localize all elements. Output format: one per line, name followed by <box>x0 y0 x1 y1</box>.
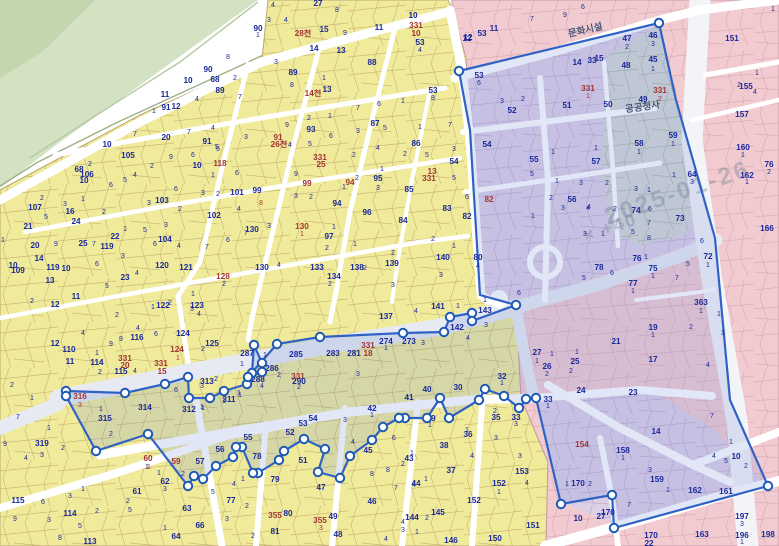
selection-vertex-node[interactable] <box>316 333 324 341</box>
parcel-label: 6 <box>174 186 178 193</box>
parcel-label: 8 <box>226 54 230 61</box>
selection-vertex-node[interactable] <box>184 373 192 381</box>
parcel-label: 85 <box>404 185 414 194</box>
parcel-label: 2 <box>251 533 255 540</box>
parcel-label: 4 <box>376 145 380 152</box>
parcel-label: 35 <box>491 413 501 422</box>
parcel-label: 56 <box>215 445 225 454</box>
parcel-label: 14 <box>651 427 661 436</box>
parcel-label: 10 <box>731 452 741 461</box>
parcel-label: 55 <box>243 433 253 442</box>
parcel-label: 2 <box>352 152 356 159</box>
parcel-label: 152 <box>467 496 481 505</box>
parcel-label: 283 <box>326 349 340 358</box>
parcel-label: 6 <box>392 435 396 442</box>
parcel-label: 2 <box>201 346 205 353</box>
parcel-label: 22 <box>644 539 654 546</box>
parcel-label: 3 <box>147 200 151 207</box>
parcel-label: 73 <box>675 214 685 223</box>
parcel-label: 1 <box>241 476 245 483</box>
parcel-label: 53 <box>298 419 308 428</box>
selection-vertex-node[interactable] <box>436 394 444 402</box>
parcel-label: 4 <box>414 308 418 315</box>
parcel-label: 51 <box>298 456 308 465</box>
parcel-label: 99 <box>302 179 312 188</box>
parcel-label: 4 <box>277 262 281 269</box>
parcel-label: 2 <box>150 163 154 170</box>
parcel-label: 1 <box>370 412 374 419</box>
parcel-label: 4 <box>135 270 139 277</box>
parcel-label: 104 <box>158 235 172 244</box>
parcel-label: 2 <box>95 508 99 515</box>
parcel-label: 1 <box>666 487 670 494</box>
parcel-label: 133 <box>310 263 324 272</box>
parcel-label: 1 <box>671 141 675 148</box>
selection-vertex-node[interactable] <box>468 317 476 325</box>
parcel-label: 10 <box>61 264 71 273</box>
parcel-label: 6 <box>477 80 481 87</box>
parcel-label: 76 <box>632 254 642 263</box>
parcel-label: 3 <box>452 146 456 153</box>
parcel-label: 1 <box>95 350 99 357</box>
parcel-label: 1 <box>706 262 710 269</box>
parcel-label: 1 <box>191 291 195 298</box>
parcel-label: 3 <box>164 222 168 229</box>
parcel-label: 4 <box>284 17 288 24</box>
parcel-label: 61 <box>132 487 142 496</box>
parcel-label: 93 <box>306 125 316 134</box>
parcel-label: 91 <box>202 137 212 146</box>
parcel-label: 7 <box>710 413 714 420</box>
selection-vertex-node[interactable] <box>321 445 329 453</box>
selection-vertex-node[interactable] <box>232 443 240 451</box>
selection-vertex-node[interactable] <box>346 452 354 460</box>
parcel-label: 1 <box>123 226 127 233</box>
parcel-label: 170 <box>601 508 615 517</box>
parcel-label: 1 <box>328 113 332 120</box>
parcel-label: 3 <box>225 516 229 523</box>
parcel-label: 151 <box>725 34 739 43</box>
parcel-label: 1 <box>428 422 432 429</box>
parcel-label: 8 <box>58 535 62 542</box>
parcel-label: 45 <box>648 55 658 64</box>
parcel-label: 1 <box>555 178 559 185</box>
parcel-label: 25 <box>316 160 326 169</box>
parcel-label: 58 <box>634 139 644 148</box>
parcel-label: 54 <box>482 140 492 149</box>
parcel-label: 144 <box>405 513 419 522</box>
parcel-label: 89 <box>215 86 225 95</box>
parcel-label: 5 <box>123 177 127 184</box>
parcel-label: 78 <box>594 263 604 272</box>
parcel-label: 21 <box>23 222 33 231</box>
parcel-label: 84 <box>398 216 408 225</box>
parcel-label: 76 <box>764 160 774 169</box>
selection-vertex-node[interactable] <box>610 524 618 532</box>
parcel-label: 5 <box>211 489 215 496</box>
selection-vertex-node[interactable] <box>220 387 228 395</box>
selection-vertex-node[interactable] <box>336 474 344 482</box>
parcel-label: 53 <box>415 38 425 47</box>
selection-vertex-node[interactable] <box>532 394 540 402</box>
parcel-label: 1 <box>651 332 655 339</box>
parcel-label: 15 <box>319 25 329 34</box>
parcel-label: 3 <box>47 517 51 524</box>
parcel-label: 6 <box>700 238 704 245</box>
parcel-label: 2 <box>309 194 313 201</box>
parcel-label: 113 <box>83 537 97 546</box>
parcel-label: 8 <box>259 200 263 207</box>
parcel-label: 3 <box>648 467 652 474</box>
parcel-label: 96 <box>362 208 372 217</box>
parcel-label: 1 <box>565 481 569 488</box>
parcel-label: 20 <box>161 133 171 142</box>
selection-vertex-node[interactable] <box>399 329 407 337</box>
parcel-label: 12 <box>50 300 60 309</box>
parcel-label: 55 <box>529 155 539 164</box>
selection-vertex-node[interactable] <box>481 385 489 393</box>
parcel-label: 16 <box>65 207 75 216</box>
selection-vertex-node[interactable] <box>446 313 454 321</box>
selection-vertex-node[interactable] <box>440 328 448 336</box>
parcel-label: 1 <box>741 152 745 159</box>
selection-vertex-node[interactable] <box>475 396 483 404</box>
parcel-label: 198 <box>761 530 775 539</box>
parcel-label: 6 <box>517 290 521 297</box>
parcel-label: 159 <box>650 475 664 484</box>
selection-vertex-node[interactable] <box>512 301 520 309</box>
parcel-label: 4 <box>260 383 264 390</box>
parcel-label: 80 <box>283 509 293 518</box>
selection-vertex-node[interactable] <box>250 341 258 349</box>
parcel-label: 3 <box>356 128 360 135</box>
map-viewport[interactable]: × +402025-01-269010682897119112418207491… <box>0 0 779 546</box>
parcel-label: 9 <box>294 171 298 178</box>
parcel-label: 3 <box>401 527 405 534</box>
parcel-label: 4 <box>211 125 215 132</box>
parcel-label: 6 <box>174 387 178 394</box>
parcel-label: 1 <box>631 288 635 295</box>
parcel-label: 1 <box>483 297 487 304</box>
parcel-label: 2 <box>115 312 119 319</box>
parcel-label: 15 <box>157 367 167 376</box>
parcel-label: 1 <box>152 108 156 115</box>
parcel-label: 4 <box>384 536 388 543</box>
parcel-label: 12 <box>171 102 181 111</box>
parcel-label: 1 <box>380 166 384 173</box>
parcel-label: 151 <box>526 521 540 530</box>
parcel-label: 82 <box>484 195 494 204</box>
parcel-label: 13 <box>336 46 346 55</box>
selection-vertex-node[interactable] <box>379 423 387 431</box>
selection-vertex-node[interactable] <box>273 340 281 348</box>
selection-vertex-node[interactable] <box>206 394 214 402</box>
parcel-label: 4 <box>712 453 716 460</box>
parcel-label: 54 <box>449 157 459 166</box>
parcel-label: 3 <box>40 452 44 459</box>
parcel-label: 6 <box>610 270 614 277</box>
parcel-label: 3 <box>78 402 82 409</box>
parcel-label: 11 <box>72 292 81 301</box>
parcel-label: 363 <box>694 298 708 307</box>
parcel-label: 141 <box>431 302 445 311</box>
parcel-label: 3 <box>200 383 204 390</box>
parcel-label: 3 <box>121 253 125 260</box>
parcel-label: 152 <box>492 479 506 488</box>
parcel-label: 7 <box>356 105 360 112</box>
parcel-label: 26천 <box>271 139 288 149</box>
parcel-label: 2 <box>549 195 553 202</box>
selection-vertex-node[interactable] <box>608 491 616 499</box>
parcel-label: 44 <box>411 479 421 488</box>
selection-vertex-node[interactable] <box>212 462 220 470</box>
parcel-label: 3 <box>484 322 488 329</box>
parcel-label: 1 <box>81 196 85 203</box>
parcel-label: 23 <box>628 388 638 397</box>
selection-vertex-node[interactable] <box>557 500 565 508</box>
parcel-label: 26 <box>542 362 552 371</box>
selection-vertex-node[interactable] <box>500 392 508 400</box>
parcel-label: 10 <box>411 29 421 38</box>
parcel-label: 5 <box>78 523 82 530</box>
parcel-label: 8 <box>335 7 339 14</box>
selection-vertex-node[interactable] <box>121 389 129 397</box>
selection-vertex-node[interactable] <box>423 414 431 422</box>
parcel-label: 10 <box>8 261 18 270</box>
selection-vertex-node[interactable] <box>258 368 266 376</box>
parcel-label: 102 <box>207 211 221 220</box>
parcel-label: 2 <box>245 503 249 510</box>
parcel-label: 3 <box>690 179 694 186</box>
selection-vertex-node[interactable] <box>161 380 169 388</box>
parcel-label: 140 <box>436 253 450 262</box>
parcel-label: 1 <box>1 237 5 244</box>
parcel-label: 162 <box>688 486 702 495</box>
parcel-label: 153 <box>515 467 529 476</box>
selection-vertex-node[interactable] <box>314 468 322 476</box>
parcel-label: 2 <box>625 44 629 51</box>
parcel-label: 9 <box>13 516 17 523</box>
parcel-label: 3 <box>439 272 443 279</box>
parcel-label: 24 <box>576 386 586 395</box>
parcel-label: 59 <box>171 457 181 466</box>
selection-vertex-node[interactable] <box>258 359 266 367</box>
parcel-label: 21 <box>611 337 621 346</box>
parcel-label: 105 <box>121 151 135 160</box>
parcel-label: 1 <box>550 351 554 358</box>
parcel-label: 7 <box>530 16 534 23</box>
parcel-label: 62 <box>160 477 170 486</box>
selection-vertex-node[interactable] <box>300 435 308 443</box>
parcel-label: 7 <box>92 241 96 248</box>
parcel-label: 2 <box>403 151 407 158</box>
parcel-label: 47 <box>622 34 632 43</box>
parcel-label: 2 <box>613 206 617 213</box>
selection-vertex-node[interactable] <box>199 475 207 483</box>
parcel-label: 2 <box>40 195 44 202</box>
parcel-label: 1 <box>81 486 85 493</box>
parcel-label: 66 <box>195 521 205 530</box>
parcel-label: 1 <box>300 231 304 238</box>
parcel-label: 3 <box>634 186 638 193</box>
selection-vertex-node[interactable] <box>92 447 100 455</box>
parcel-label: 2 <box>363 265 367 272</box>
parcel-label: 2 <box>307 115 311 122</box>
parcel-label: 5 <box>383 125 387 132</box>
parcel-label: 77 <box>628 279 638 288</box>
parcel-label: 11 <box>375 23 384 32</box>
parcel-label: 2 <box>737 82 741 89</box>
parcel-label: 143 <box>478 306 492 315</box>
parcel-label: 50 <box>603 100 613 109</box>
selection-vertex-node[interactable] <box>275 456 283 464</box>
parcel-label: 10 <box>408 11 418 20</box>
parcel-label: 4 <box>401 519 405 526</box>
selection-vertex-node[interactable] <box>185 394 193 402</box>
parcel-label: 2 <box>297 384 301 391</box>
parcel-label: 4 <box>197 311 201 318</box>
parcel-label: 51 <box>562 101 572 110</box>
parcel-label: 1 <box>424 476 428 483</box>
parcel-label: 110 <box>62 345 76 354</box>
parcel-label: 273 <box>402 337 416 346</box>
parcel-label: 4 <box>177 243 181 250</box>
parcel-label: 137 <box>379 312 393 321</box>
parcel-label: 1 <box>500 380 504 387</box>
parcel-label: 8 <box>431 95 435 102</box>
parcel-label: 14 <box>572 58 582 67</box>
parcel-label: 4 <box>133 172 137 179</box>
parcel-label: 2 <box>178 206 182 213</box>
parcel-label: 107 <box>28 203 42 212</box>
parcel-label: 119 <box>46 263 60 272</box>
parcel-label: 8 <box>290 82 294 89</box>
parcel-label: 155 <box>739 82 753 91</box>
parcel-label: 319 <box>35 439 49 448</box>
parcel-label: 139 <box>385 259 399 268</box>
selection-vertex-node[interactable] <box>62 392 70 400</box>
selection-vertex-node[interactable] <box>522 395 530 403</box>
parcel-label: 2 <box>61 445 65 452</box>
parcel-label: 1 <box>222 398 226 405</box>
parcel-label: 114 <box>90 358 104 367</box>
parcel-label: 118 <box>213 159 227 168</box>
parcel-label: 9 <box>343 30 347 37</box>
parcel-label: 59 <box>668 131 678 140</box>
parcel-label: 72 <box>703 252 713 261</box>
parcel-label: 5 <box>582 275 586 282</box>
parcel-label: 2 <box>277 372 281 379</box>
parcel-label: 2 <box>401 461 405 468</box>
parcel-label: 1 <box>586 93 590 100</box>
parcel-label: 3 <box>68 493 72 500</box>
parcel-label: 2 <box>233 75 237 82</box>
parcel-label: 1 <box>151 304 155 311</box>
parcel-label: 1 <box>755 70 759 77</box>
parcel-label: 3 <box>190 306 194 313</box>
parcel-label: 3 <box>356 371 360 378</box>
selection-vertex-node[interactable] <box>445 414 453 422</box>
parcel-label: 12 <box>462 34 472 43</box>
parcel-label: 2 <box>605 180 609 187</box>
parcel-label: 79 <box>270 475 280 484</box>
parcel-label: 12 <box>50 339 60 348</box>
parcel-label: 1 <box>418 124 422 131</box>
parcel-label: 116 <box>130 333 144 342</box>
selection-vertex-node[interactable] <box>229 453 237 461</box>
parcel-label: 5 <box>425 152 429 159</box>
parcel-label: 2 <box>744 463 748 470</box>
parcel-label: 7 <box>647 220 651 227</box>
parcel-label: 1 <box>644 254 648 261</box>
parcel-label: 2 <box>10 382 14 389</box>
selection-vertex-node[interactable] <box>144 430 152 438</box>
parcel-label: 2 <box>689 324 693 331</box>
parcel-label: 2 <box>126 498 130 505</box>
parcel-label: 4 <box>271 2 275 9</box>
parcel-label: 4 <box>753 89 757 96</box>
parcel-label: 4 <box>525 480 529 487</box>
parcel-label: 130 <box>295 222 309 231</box>
parcel-label: 30 <box>453 383 463 392</box>
parcel-label: 331 <box>581 84 595 93</box>
parcel-label: 7 <box>394 485 398 492</box>
selection-vertex-node[interactable] <box>184 482 192 490</box>
parcel-label: 52 <box>285 428 295 437</box>
parcel-label: 64 <box>687 170 697 179</box>
parcel-label: 3 <box>579 180 583 187</box>
parcel-label: 1 <box>551 149 555 156</box>
selection-vertex-node[interactable] <box>455 67 463 75</box>
parcel-label: 28천 <box>295 28 312 38</box>
parcel-label: 7 <box>133 131 137 138</box>
selection-vertex-node[interactable] <box>515 404 523 412</box>
parcel-label: 4 <box>288 142 292 149</box>
parcel-label: 5 <box>105 283 109 290</box>
selection-vertex-node[interactable] <box>249 469 257 477</box>
parcel-label: 4 <box>466 335 470 342</box>
selection-vertex-node[interactable] <box>244 373 252 381</box>
selection-vertex-node[interactable] <box>395 414 403 422</box>
parcel-label: 2 <box>767 169 771 176</box>
parcel-label: 24 <box>71 217 81 226</box>
parcel-label: 7 <box>238 94 242 101</box>
selection-vertex-node[interactable] <box>280 447 288 455</box>
parcel-label: 3 <box>721 330 725 337</box>
parcel-label: 97 <box>324 232 334 241</box>
parcel-label: 3 <box>740 521 744 528</box>
parcel-label: 1 <box>575 349 579 356</box>
parcel-label: 56 <box>567 195 577 204</box>
selection-vertex-node[interactable] <box>655 19 663 27</box>
parcel-label: 38 <box>439 441 449 450</box>
parcel-label: 1 <box>240 361 244 368</box>
parcel-label: 14 <box>34 254 44 263</box>
parcel-label: 95 <box>373 174 383 183</box>
cadastral-map-canvas[interactable]: × +402025-01-269010682897119112418207491… <box>0 0 779 546</box>
parcel-label: 6 <box>191 152 195 159</box>
selection-vertex-node[interactable] <box>190 472 198 480</box>
parcel-label: 5 <box>128 507 132 514</box>
parcel-label: 158 <box>616 446 630 455</box>
parcel-label: 125 <box>205 339 219 348</box>
parcel-label: 1 <box>47 425 51 432</box>
selection-vertex-node[interactable] <box>764 482 772 490</box>
parcel-label: 130 <box>255 263 269 272</box>
selection-vertex-node[interactable] <box>368 436 376 444</box>
parcel-label: 74 <box>631 206 641 215</box>
parcel-label: 2 <box>588 481 592 488</box>
